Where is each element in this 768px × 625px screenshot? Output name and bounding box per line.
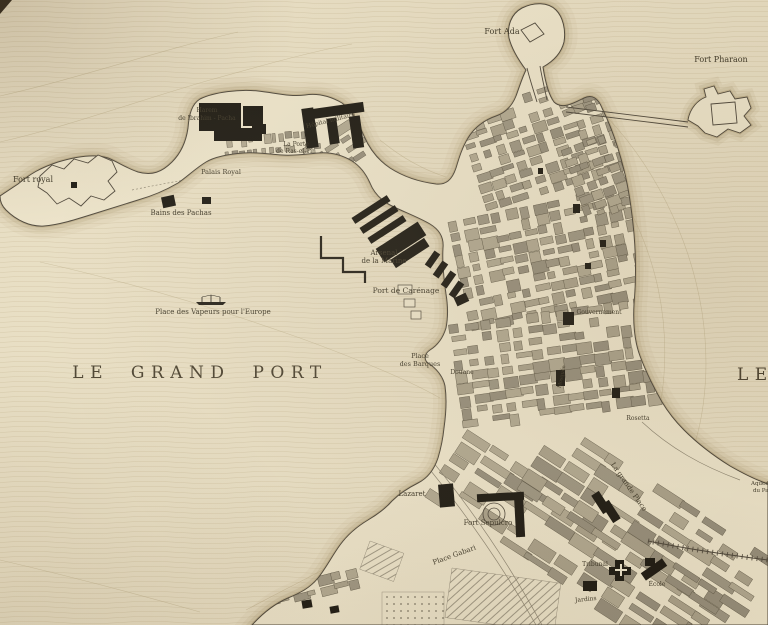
map-label-de-ibrahim-pacha: de Ibrahim - Pacha	[178, 115, 236, 122]
map-label-la-porte: La Porte	[283, 141, 309, 148]
map-label-de-ras-el-tin: de Ras-el-Tin	[276, 148, 316, 155]
map-label-gouvernement: Gouvernement	[576, 309, 622, 316]
map-label-tribunal: Tribunal	[582, 561, 608, 568]
map-label-fort-pharaon: Fort Pharaon	[694, 55, 747, 64]
map-label-place-des-vapeurs-pour-l-europe: Place des Vapeurs pour l'Europe	[155, 308, 270, 316]
building	[202, 197, 211, 204]
building	[585, 263, 591, 269]
map-label-lazaret: Lazaret	[399, 490, 426, 498]
port-map-canvas: Fort AdaFort PharaonFort royalHaremde Ib…	[0, 0, 768, 625]
map-label-rosetta: Rosetta	[626, 415, 650, 422]
building	[583, 581, 597, 591]
building	[71, 182, 77, 188]
building	[243, 106, 263, 126]
map-label-de-la-marine: de la Marine	[361, 257, 406, 265]
map-label-place: Place	[411, 352, 429, 360]
building	[252, 124, 266, 134]
building	[573, 204, 580, 213]
map-label-bains-des-pachas: Bains des Pachas	[150, 209, 211, 217]
building	[563, 312, 574, 325]
map-label-le: LE	[737, 365, 768, 385]
pier	[404, 299, 415, 307]
orchard-dotted	[382, 592, 444, 625]
map-label-palais-royal: Palais Royal	[201, 168, 241, 176]
map-label-du-pacha: du Pacha	[753, 488, 768, 494]
map-label-le-grand-port: LE GRAND PORT	[72, 363, 327, 383]
map-label-cole: École	[649, 580, 666, 588]
map-label-fort-ada: Fort Ada	[484, 27, 519, 36]
antique-port-map: Fort AdaFort PharaonFort royalHaremde Ib…	[0, 0, 768, 625]
fort-pharaon-inner	[711, 102, 737, 125]
map-label-harem: Harem	[197, 107, 218, 114]
map-label-des-barques: des Barques	[400, 360, 441, 368]
map-label-douane: Douane	[450, 369, 474, 376]
map-label-fort-royal: Fort royal	[13, 175, 53, 184]
building	[301, 599, 312, 609]
map-label-fort-sepulcro: Fort Sepulcro	[464, 519, 513, 527]
building	[538, 168, 543, 174]
map-label-arsenal: Arsenal	[369, 249, 398, 257]
map-label-port-de-car-nage: Port de Carénage	[373, 286, 440, 295]
building	[600, 240, 606, 247]
map-label-aqueduc: Aqueduc	[750, 481, 768, 487]
building	[438, 483, 455, 507]
pier	[411, 311, 421, 319]
building	[645, 558, 655, 566]
building	[612, 388, 620, 398]
church-cross-icon	[615, 569, 627, 571]
